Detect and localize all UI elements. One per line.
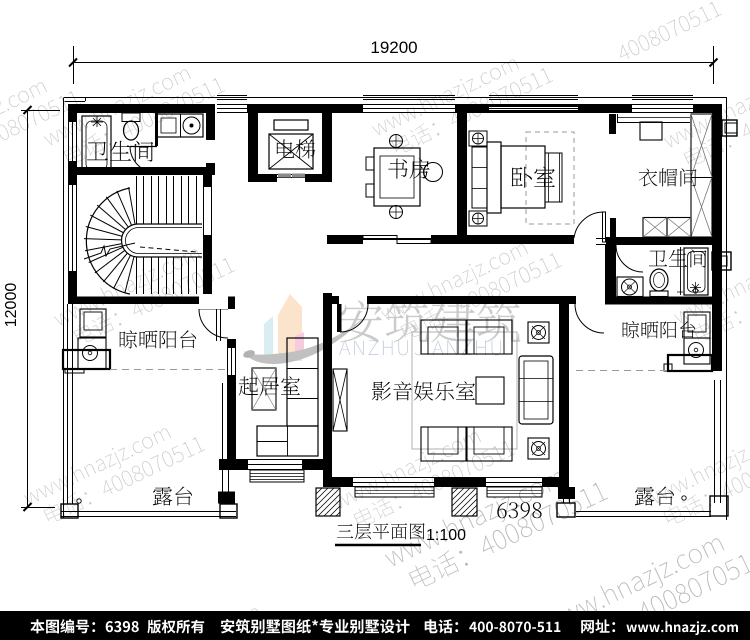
svg-text:1:100: 1:100: [426, 527, 466, 544]
svg-text:12000: 12000: [3, 283, 20, 328]
svg-text:19200: 19200: [370, 38, 417, 57]
